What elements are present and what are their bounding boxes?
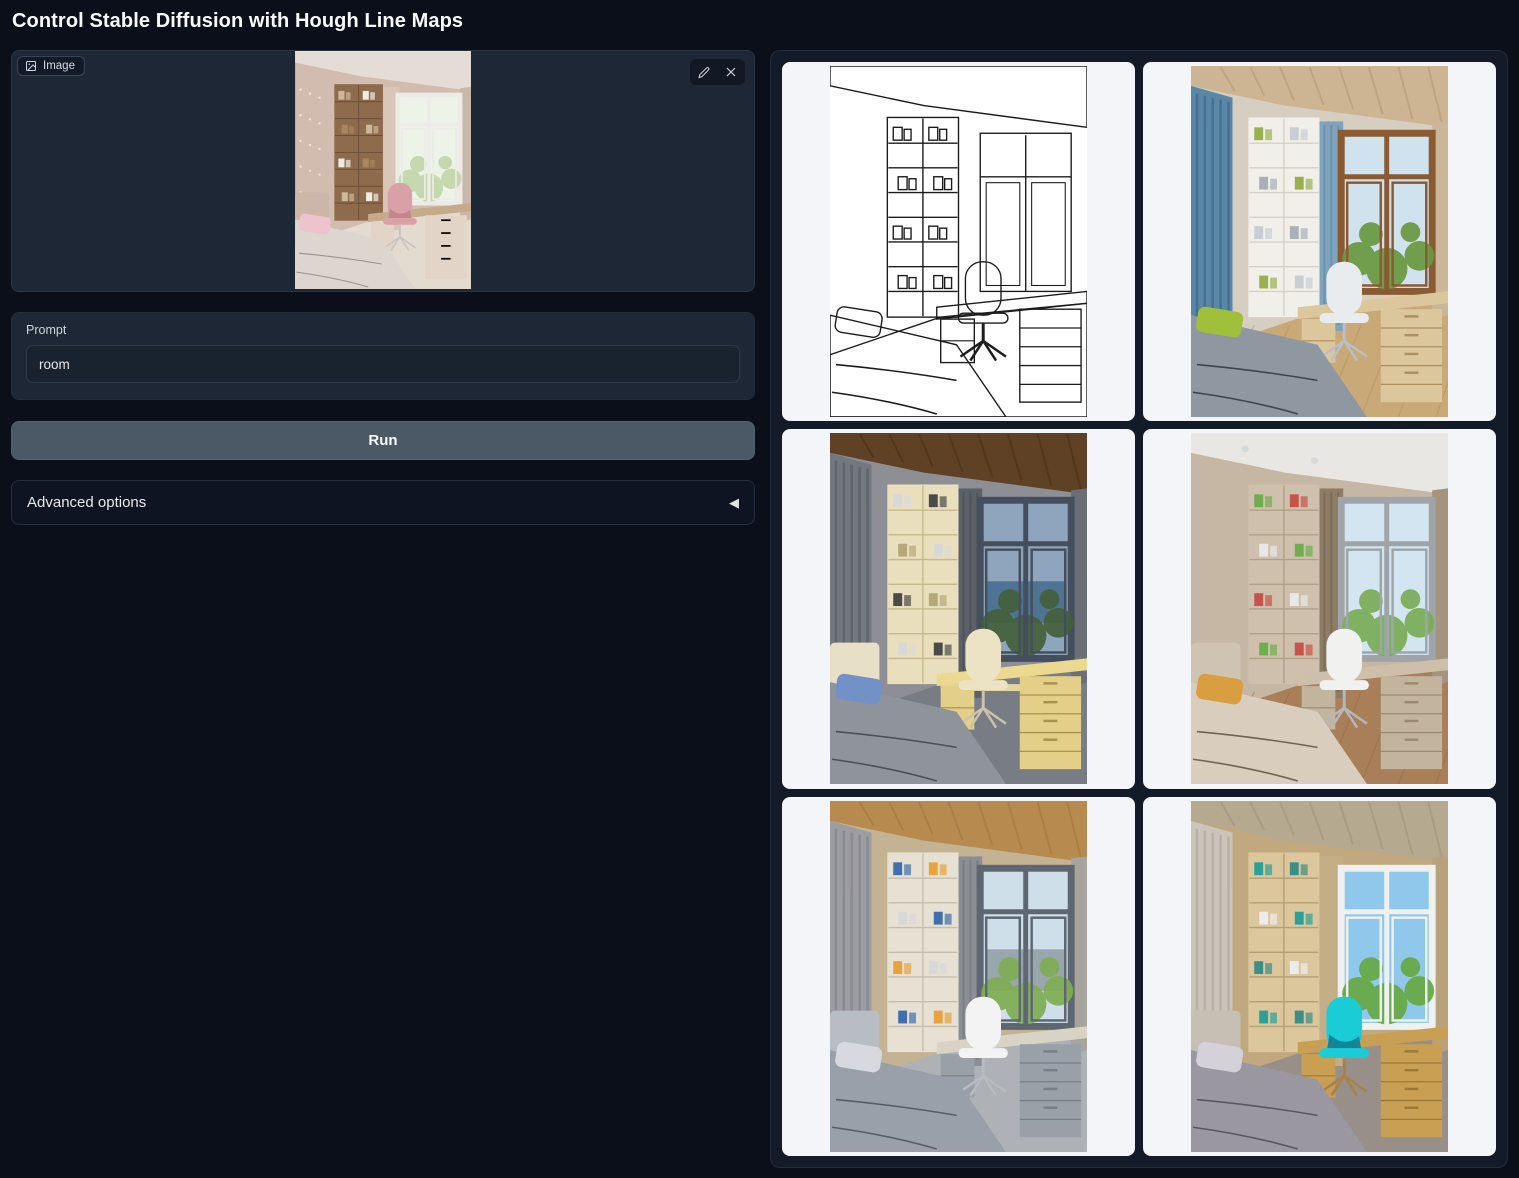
left-column: Image Prompt (11, 50, 755, 525)
page-title: Control Stable Diffusion with Hough Line… (12, 10, 1508, 33)
image-label-badge: Image (17, 56, 85, 76)
generated-room-cyan-chair-image (1191, 801, 1448, 1152)
prompt-label: Prompt (26, 323, 740, 337)
close-icon (725, 66, 737, 78)
advanced-options-accordion[interactable]: Advanced options ◀ (11, 480, 755, 525)
generated-room-gray-wood-image (830, 801, 1087, 1152)
generated-room-blue-curtains-image (1191, 66, 1448, 417)
gallery-item-hough-line-map[interactable] (782, 62, 1135, 421)
gallery-item-generated-room-gray-wood[interactable] (782, 797, 1135, 1156)
app-page: Control Stable Diffusion with Hough Line… (0, 0, 1519, 1178)
accordion-collapse-arrow: ◀ (729, 495, 739, 511)
clear-image-button[interactable] (719, 61, 743, 83)
generated-room-dark-evening-image (830, 433, 1087, 784)
main-columns: Image Prompt (11, 50, 1508, 1168)
gallery-item-generated-room-cyan-chair[interactable] (1143, 797, 1496, 1156)
image-icon (25, 60, 37, 72)
prompt-input[interactable] (26, 345, 740, 383)
edit-image-button[interactable] (692, 61, 716, 83)
generated-room-taupe-image (1191, 433, 1448, 784)
gallery-item-generated-room-dark-evening[interactable] (782, 429, 1135, 788)
input-image-panel: Image (11, 50, 755, 292)
advanced-options-label: Advanced options (27, 494, 146, 511)
output-gallery (770, 50, 1508, 1168)
uploaded-image (295, 50, 471, 292)
hough-line-map-image (830, 66, 1087, 417)
gallery-item-generated-room-blue-curtains[interactable] (1143, 62, 1496, 421)
image-label-text: Image (43, 60, 75, 72)
prompt-panel: Prompt (11, 312, 755, 400)
run-button[interactable]: Run (11, 421, 755, 460)
uploaded-room-photo-image (295, 50, 471, 289)
pencil-icon (698, 66, 710, 79)
gallery-item-generated-room-taupe[interactable] (1143, 429, 1496, 788)
image-toolbar (690, 59, 745, 85)
